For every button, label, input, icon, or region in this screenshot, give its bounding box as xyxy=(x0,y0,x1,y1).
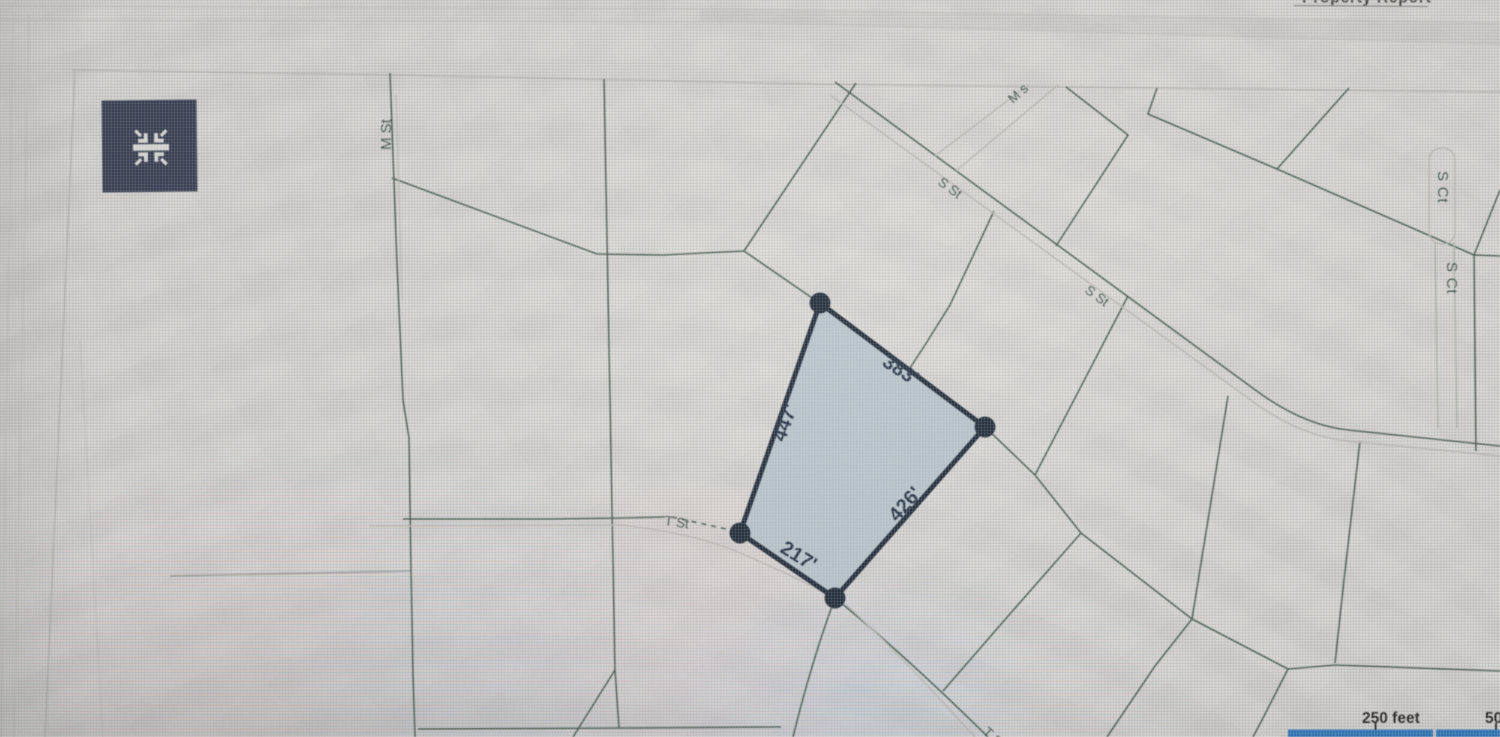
svg-text:S Ct: S Ct xyxy=(1434,171,1451,203)
svg-text:S Ct: S Ct xyxy=(1443,262,1460,294)
svg-text:250 feet: 250 feet xyxy=(1362,710,1420,727)
svg-text:S St: S St xyxy=(1082,282,1112,309)
svg-text:S St: S St xyxy=(935,174,965,201)
svg-text:T S: T S xyxy=(980,724,1005,737)
svg-text:217': 217' xyxy=(776,537,820,576)
svg-text:T St: T St xyxy=(664,513,691,531)
svg-text:M s: M s xyxy=(1005,80,1031,106)
svg-text:447': 447' xyxy=(768,401,802,444)
svg-text:383': 383' xyxy=(878,351,922,390)
svg-text:M St: M St xyxy=(378,118,395,150)
svg-text:426': 426' xyxy=(885,483,927,526)
svg-text:Property Report: Property Report xyxy=(1302,0,1431,7)
svg-text:50: 50 xyxy=(1485,710,1500,727)
